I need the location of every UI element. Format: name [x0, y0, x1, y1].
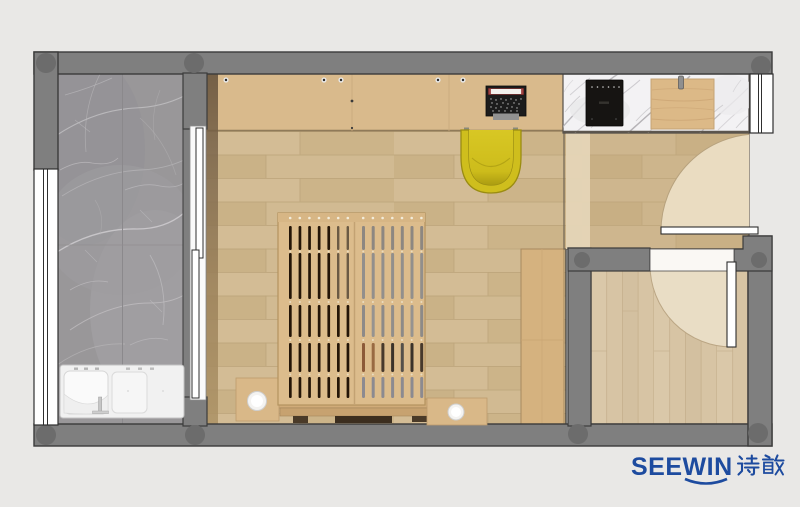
svg-text:SEEWIN: SEEWIN: [631, 453, 733, 481]
